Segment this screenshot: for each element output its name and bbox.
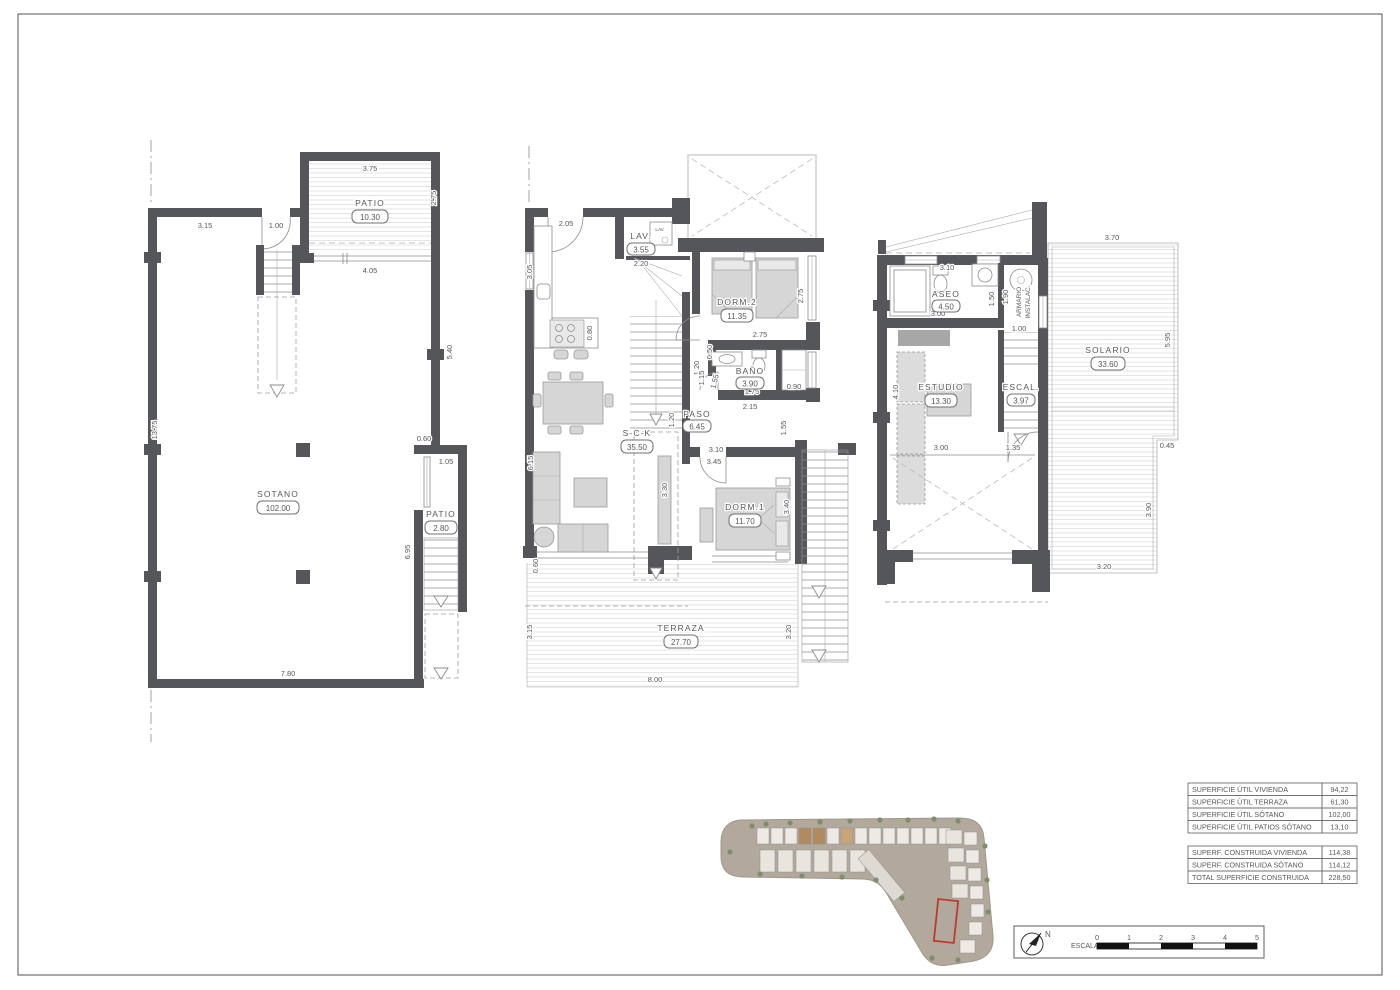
room-name: BAÑO — [736, 366, 765, 376]
room-name: PATIO — [355, 198, 385, 208]
dim: 3.40 — [782, 500, 791, 515]
dim: 1.00 — [1012, 324, 1027, 333]
dim: 3.05 — [525, 265, 534, 280]
dim: 2.15 — [743, 402, 758, 411]
room-name: ASEO — [932, 289, 960, 299]
room-area: 11.35 — [727, 312, 747, 321]
estudio-furniture — [897, 352, 971, 504]
living-room-furniture — [533, 452, 671, 552]
dim: 3.15 — [198, 221, 213, 230]
scale-tick: 5 — [1255, 933, 1259, 942]
appliance-label: LAV. — [655, 227, 664, 232]
room-area: 3.90 — [742, 380, 758, 389]
table-row: TOTAL SUPERFICIE CONSTRUIDA 228,50 — [1188, 871, 1357, 884]
room-name: TERRAZA — [657, 623, 704, 633]
dim: 3.10 — [709, 445, 724, 454]
room-label-patio2: PATIO 2.80 — [425, 509, 457, 534]
dim: 0.60 — [531, 559, 540, 574]
dim: 7.80 — [281, 669, 296, 678]
table-row: SUPERFICIE ÚTIL TERRAZA 61,30 — [1188, 796, 1357, 809]
room-area: 27.70 — [671, 638, 692, 647]
room-name: SOTANO — [257, 489, 299, 499]
dim: 6.15 — [526, 456, 535, 471]
table-util: SUPERFICIE ÚTIL VIVIENDA 94,22 SUPERFICI… — [1188, 783, 1357, 833]
dim: 3.20 — [1097, 562, 1112, 571]
dim: 2.20 — [634, 259, 649, 268]
dim: 1.55 — [779, 421, 788, 436]
room-label-sotano: SOTANO 102.00 — [257, 489, 299, 514]
room-area: 11.70 — [735, 517, 755, 526]
dim: 3.10 — [940, 263, 955, 272]
table-value: 228,50 — [1329, 873, 1351, 882]
dim: 0.60 — [417, 434, 432, 443]
armario-label-1: ARMARIO — [1016, 287, 1023, 317]
room-label-bano: BAÑO 3.90 — [736, 366, 765, 389]
armario-label-2: INSTALAC. — [1025, 285, 1032, 318]
room-name: DORM.1 — [725, 502, 765, 512]
plan-sheet: 3.75 2.75 3.15 1.00 4.05 5.40 13.75 0.60… — [0, 0, 1400, 990]
room-label-patio1: PATIO 10.30 — [352, 198, 388, 223]
solario-deck — [1048, 243, 1178, 573]
table-label: SUPERFICIE ÚTIL VIVIENDA — [1192, 785, 1288, 794]
dim: 3.70 — [1105, 233, 1120, 242]
room-area: 102.00 — [266, 504, 291, 513]
dim: 2.75 — [753, 330, 768, 339]
dim: 0.80 — [585, 326, 594, 341]
table-value: 61,30 — [1331, 798, 1349, 807]
table-value: 94,22 — [1331, 785, 1349, 794]
patio-opening-lines — [309, 253, 431, 264]
basement-stair — [256, 245, 300, 397]
site-plan — [721, 816, 993, 965]
dim: 1.15 — [697, 371, 706, 386]
table-value: 102,00 — [1329, 810, 1351, 819]
scale-tick: 3 — [1191, 933, 1195, 942]
scale-tick: 0 — [1095, 933, 1099, 942]
dim: 2.75 — [429, 191, 438, 206]
floor-plan-drawing: 3.75 2.75 3.15 1.00 4.05 5.40 13.75 0.60… — [0, 0, 1400, 990]
dim: 6.95 — [403, 545, 412, 560]
areas-table: SUPERFICIE ÚTIL VIVIENDA 94,22 SUPERFICI… — [1188, 783, 1357, 884]
dim: 1.35 — [1006, 443, 1021, 452]
table-row: SUPERFICIE ÚTIL VIVIENDA 94,22 — [1188, 783, 1357, 796]
dim: 2.05 — [559, 219, 574, 228]
table-label: SUPERFICIE ÚTIL PATIOS SÓTANO — [1192, 823, 1312, 832]
room-label-paso: PASO 6.45 — [683, 409, 711, 432]
dim: 1.00 — [269, 221, 284, 230]
table-label: SUPERFICIE ÚTIL TERRAZA — [1192, 798, 1288, 807]
dim: 3.20 — [784, 625, 793, 640]
table-row: SUPERF. CONSTRUIDA SÓTANO 114,12 — [1188, 859, 1357, 872]
north-label: N — [1045, 930, 1051, 939]
table-row: SUPERFICIE ÚTIL SÓTANO 102,00 — [1188, 808, 1357, 821]
patio2-stair — [424, 457, 458, 679]
cabinet — [898, 330, 950, 346]
plan-ground-floor: LAV. — [523, 146, 856, 687]
room-area: 10.30 — [360, 213, 381, 222]
scale-tick: 4 — [1223, 933, 1227, 942]
scale-box — [1014, 926, 1264, 958]
table-label: SUPERF. CONSTRUIDA SÓTANO — [1192, 861, 1304, 870]
dim: 3.75 — [363, 164, 378, 173]
room-name: PATIO — [426, 509, 456, 519]
table-label: SUPERF. CONSTRUIDA VIVIENDA — [1192, 848, 1307, 857]
dim: 0.90 — [787, 382, 802, 391]
plan-upper-floor: 3.10 1.50 1.90 1.00 3.00 4.10 3.70 5.95 … — [873, 202, 1178, 602]
table-label: SUPERFICIE ÚTIL SÓTANO — [1192, 810, 1285, 819]
room-label-lav: LAV. 3.55 — [627, 231, 655, 255]
room-area: 3.55 — [633, 246, 649, 255]
dim: 5.40 — [445, 345, 454, 360]
dim: 3.90 — [1144, 503, 1153, 518]
scale-bar-block: N ESCALA : 0 1 2 3 4 5 — [1014, 926, 1264, 958]
bedroom2-furniture — [712, 252, 798, 318]
scale-tick: 1 — [1127, 933, 1131, 942]
dim: 1.20 — [667, 413, 676, 428]
void-above — [688, 155, 816, 240]
room-name: SOLARIO — [1085, 345, 1131, 355]
room-label-dorm2: DORM.2 11.35 — [717, 297, 757, 322]
dim: 0.45 — [1160, 441, 1175, 450]
room-name: PASO — [683, 409, 710, 419]
dim: 4.10 — [891, 385, 900, 400]
room-name: S-C-K — [623, 428, 652, 438]
table-row: SUPERF. CONSTRUIDA VIVIENDA 114,38 — [1188, 846, 1357, 859]
table-value: 13,10 — [1331, 823, 1349, 832]
plan-basement: 3.75 2.75 3.15 1.00 4.05 5.40 13.75 0.60… — [144, 140, 467, 742]
dim: 3.00 — [934, 443, 949, 452]
room-name: ESCAL. — [1003, 382, 1040, 392]
dim: 8.00 — [648, 675, 663, 684]
room-area: 13.30 — [931, 397, 952, 406]
laundry-machine: LAV. — [650, 222, 672, 245]
dim: 0.50 — [705, 345, 714, 360]
dim: 5.95 — [1163, 333, 1172, 348]
dim: 1.05 — [439, 457, 454, 466]
dim: 3.30 — [660, 483, 669, 498]
dim: 3.15 — [525, 625, 534, 640]
dim: 2.75 — [796, 289, 805, 304]
table-value: 114,12 — [1329, 861, 1350, 870]
room-label-sck: S-C-K 35.50 — [621, 428, 653, 453]
room-area: 35.50 — [627, 443, 648, 452]
dining-set — [533, 372, 613, 434]
room-area: 2.80 — [433, 524, 449, 533]
table-construida: SUPERF. CONSTRUIDA VIVIENDA 114,38 SUPER… — [1188, 846, 1357, 884]
dim: 3.45 — [707, 457, 722, 466]
room-area: 33.60 — [1098, 360, 1119, 369]
table-value: 114,38 — [1329, 848, 1350, 857]
exterior-stair — [802, 450, 848, 662]
sheet-border — [18, 14, 1382, 975]
roof-slope — [878, 210, 1032, 254]
room-name: LAV. — [630, 231, 651, 241]
dim: 1.50 — [987, 292, 996, 307]
room-label-escal: ESCAL. 3.97 — [1003, 382, 1040, 406]
room-area: 3.97 — [1013, 397, 1029, 406]
dim: 13.75 — [150, 421, 159, 440]
room-name: ESTUDIO — [918, 382, 963, 392]
dim: 4.05 — [363, 266, 378, 275]
table-row: SUPERFICIE ÚTIL PATIOS SÓTANO 13,10 — [1188, 821, 1357, 834]
dim: 1.90 — [1001, 290, 1010, 305]
room-area: 4.50 — [938, 303, 954, 312]
room-area: 6.45 — [689, 423, 705, 432]
room-label-dorm1: DORM.1 11.70 — [725, 502, 765, 527]
scale-tick: 2 — [1159, 933, 1163, 942]
room-name: DORM.2 — [717, 297, 757, 307]
table-label: TOTAL SUPERFICIE CONSTRUIDA — [1192, 873, 1309, 882]
room-label-aseo: ASEO 4.50 — [932, 289, 960, 312]
